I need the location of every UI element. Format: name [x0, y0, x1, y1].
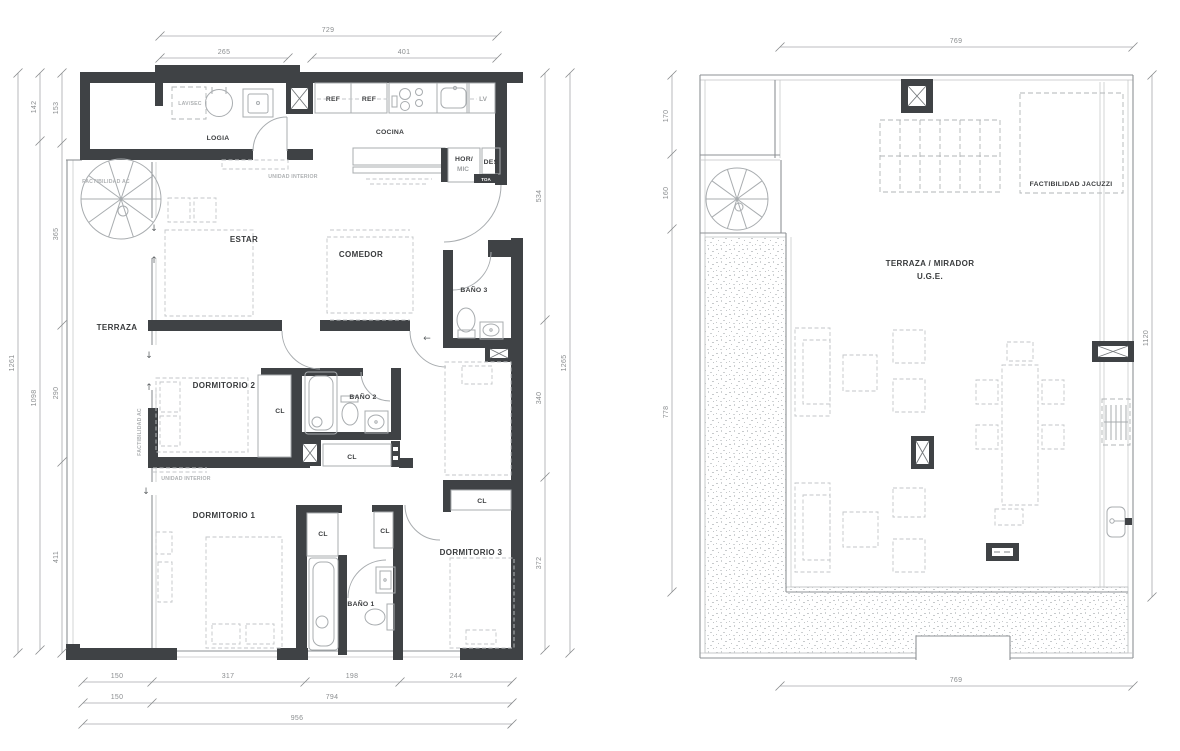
dim-side-mid-top: 142	[31, 101, 38, 114]
terrace-glass	[152, 162, 156, 648]
arrow-up-icon: ↑	[150, 256, 158, 266]
dim-right-1: 534	[536, 190, 543, 203]
unidad-interior-dashes	[153, 468, 207, 472]
arrow-down-icon: ↓	[150, 224, 158, 234]
dim-roof-right: 1120	[1143, 330, 1150, 346]
spiral-stair-roof	[706, 168, 768, 230]
closet-label: CL	[318, 531, 328, 538]
ref-label: REF	[326, 96, 340, 103]
room-label-logia: LOGIA	[207, 135, 230, 142]
arrow-down-icon: ↓	[142, 487, 150, 497]
room-label-jacuzzi: FACTIBILIDAD JACUZZI	[1030, 181, 1113, 188]
kitchen-appliances	[315, 83, 495, 113]
dim-side-mid-bot: 1098	[31, 390, 38, 407]
dim-right-3: 372	[536, 557, 543, 570]
dim-side-in-2: 365	[53, 228, 60, 241]
room-label-dormitorio2: DORMITORIO 2	[193, 381, 256, 390]
dim-bot-1b: 317	[222, 673, 235, 680]
arrow-down-icon: ↓	[145, 351, 153, 361]
kitchen-island	[353, 148, 445, 184]
bano3-fixtures	[457, 308, 503, 339]
dim-side-out: 1261	[9, 355, 16, 372]
room-label-terraza-mirador: TERRAZA / MIRADOR	[886, 259, 975, 268]
dim-bot-1c: 198	[346, 673, 359, 680]
room-label-dormitorio1: DORMITORIO 1	[193, 511, 256, 520]
room-label-bano2: BAÑO 2	[349, 392, 376, 401]
left-plan: ↓ ↑ ↓ ↑ ↓ ← LOGIA COCINA ESTAR COMEDOR T…	[9, 27, 575, 729]
dim-top-total: 729	[322, 27, 335, 34]
factibilidad-ac-note: FACTIBILIDAD AC	[137, 408, 143, 456]
arrow-up-icon: ↑	[145, 383, 153, 393]
dim-bot-1d: 244	[450, 673, 463, 680]
closet-label: CL	[347, 454, 357, 461]
dorm1-bed	[156, 532, 282, 648]
left-doors	[253, 117, 501, 598]
spiral-stair	[81, 159, 161, 239]
unidad-interior-note: UNIDAD INTERIOR	[268, 174, 317, 180]
right-room-labels: TERRAZA / MIRADOR U.G.E. FACTIBILIDAD JA…	[886, 181, 1113, 281]
room-label-terraza: TERRAZA	[97, 323, 138, 332]
room-label-estar: ESTAR	[230, 235, 258, 244]
dim-roof-left-1: 170	[663, 110, 670, 123]
dim-roof-left-2: 160	[663, 187, 670, 200]
room-label-bano3: BAÑO 3	[460, 285, 487, 294]
dim-bot-2b: 794	[326, 694, 339, 701]
door-swing-arrows: ↓ ↑ ↓ ↑ ↓ ←	[142, 224, 431, 497]
roof-shaft-right	[1092, 341, 1134, 362]
dim-bot-3: 956	[291, 715, 304, 722]
bano2-fixtures	[305, 372, 388, 434]
room-label-cocina: COCINA	[376, 129, 404, 136]
roof-box-bottom	[986, 543, 1019, 561]
closet-label: CL	[275, 408, 285, 415]
room-label-dormitorio3: DORMITORIO 3	[440, 548, 503, 557]
duct-shaft-kitchen	[286, 83, 313, 114]
mic-label: MIC	[457, 166, 469, 173]
dim-right-2: 340	[536, 392, 543, 405]
arrow-left-icon: ←	[423, 334, 431, 344]
stove	[389, 83, 437, 113]
room-label-bano1: BAÑO 1	[347, 599, 374, 608]
floorplan-page: ↓ ↑ ↓ ↑ ↓ ← LOGIA COCINA ESTAR COMEDOR T…	[0, 0, 1180, 751]
dim-side-in-3: 290	[53, 387, 60, 400]
lavsec-label: LAV/SEC	[178, 101, 202, 107]
dim-right-out: 1265	[561, 355, 568, 372]
logia-sink	[243, 89, 273, 117]
dorm3-beds	[445, 362, 514, 648]
roof-grill	[1102, 399, 1130, 445]
lv-label: LV	[479, 96, 487, 103]
dim-side-in-1: 153	[53, 102, 60, 115]
dim-roof-left-3: 778	[663, 406, 670, 419]
dim-side-in-4: 411	[53, 551, 60, 563]
jacuzzi-dashed-area	[1020, 93, 1123, 193]
dim-top-left: 265	[218, 49, 231, 56]
des-label: DES	[484, 159, 499, 166]
closet-label: CL	[380, 528, 390, 535]
dim-roof-top: 769	[950, 38, 963, 45]
roof-shaft-top	[901, 79, 933, 113]
comedor-furniture	[327, 230, 413, 320]
kitchen-sink	[437, 83, 469, 113]
roof-shaft-mid	[911, 436, 934, 469]
duct-shaft-bano3	[485, 344, 513, 362]
washing-machine	[206, 87, 233, 117]
stair-projection-dashed	[880, 120, 1000, 192]
dim-bot-1a: 150	[111, 673, 124, 680]
toa-label: TOA	[481, 177, 491, 182]
right-plan: TERRAZA / MIRADOR U.G.E. FACTIBILIDAD JA…	[663, 38, 1157, 691]
hor-label: HOR/	[455, 156, 473, 163]
dim-bot-2a: 150	[111, 694, 124, 701]
dim-top-right: 401	[398, 49, 411, 56]
closet-label: CL	[477, 498, 487, 505]
bottom-wall-notch	[916, 636, 1010, 660]
estar-furniture	[165, 160, 288, 316]
room-label-comedor: COMEDOR	[339, 250, 383, 259]
factibilidad-ac-note: FACTIBILIDAD AC	[82, 179, 130, 185]
unidad-interior-note: UNIDAD INTERIOR	[161, 476, 210, 482]
room-label-uge: U.G.E.	[917, 272, 943, 281]
ref-label: REF	[362, 96, 376, 103]
floorplan-drawing: ↓ ↑ ↓ ↑ ↓ ← LOGIA COCINA ESTAR COMEDOR T…	[0, 0, 1180, 751]
left-walls	[66, 65, 523, 660]
duct-shaft-bano2	[299, 440, 321, 466]
dim-roof-bottom: 769	[950, 677, 963, 684]
